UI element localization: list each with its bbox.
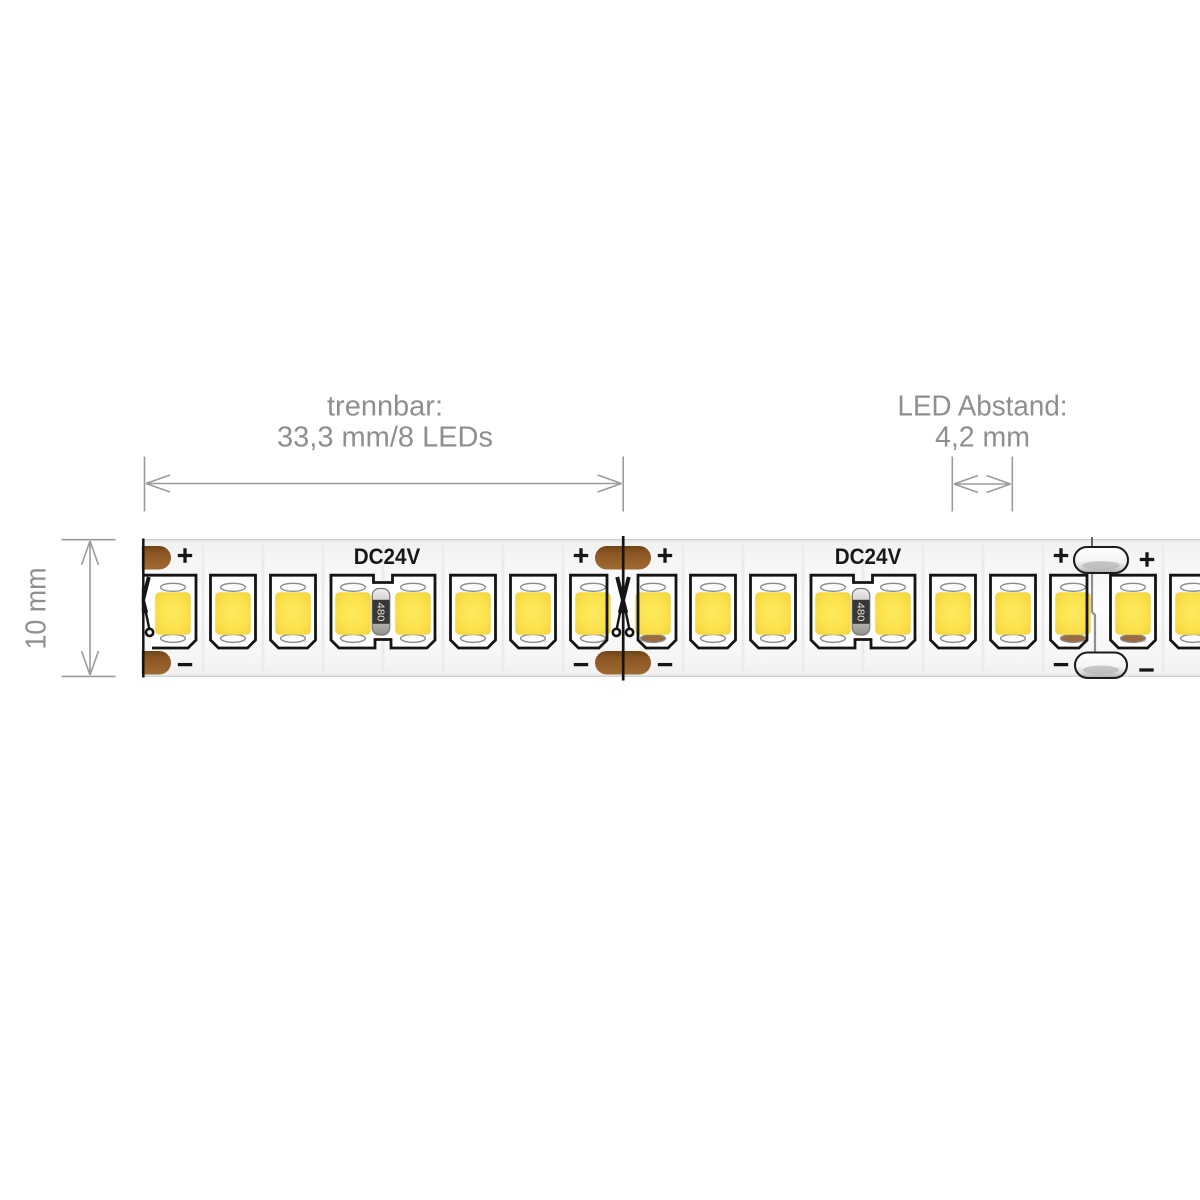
svg-text:DC24V: DC24V (835, 544, 902, 569)
svg-text:4,2 mm: 4,2 mm (935, 422, 1030, 454)
svg-text:33,3 mm/8 LEDs: 33,3 mm/8 LEDs (277, 422, 493, 454)
svg-text:480: 480 (374, 603, 385, 622)
svg-text:LED Abstand:: LED Abstand: (898, 391, 1068, 423)
svg-text:DC24V: DC24V (354, 544, 421, 569)
svg-text:trennbar:: trennbar: (327, 391, 443, 423)
svg-text:10 mm: 10 mm (21, 568, 53, 650)
svg-text:480: 480 (854, 603, 865, 622)
